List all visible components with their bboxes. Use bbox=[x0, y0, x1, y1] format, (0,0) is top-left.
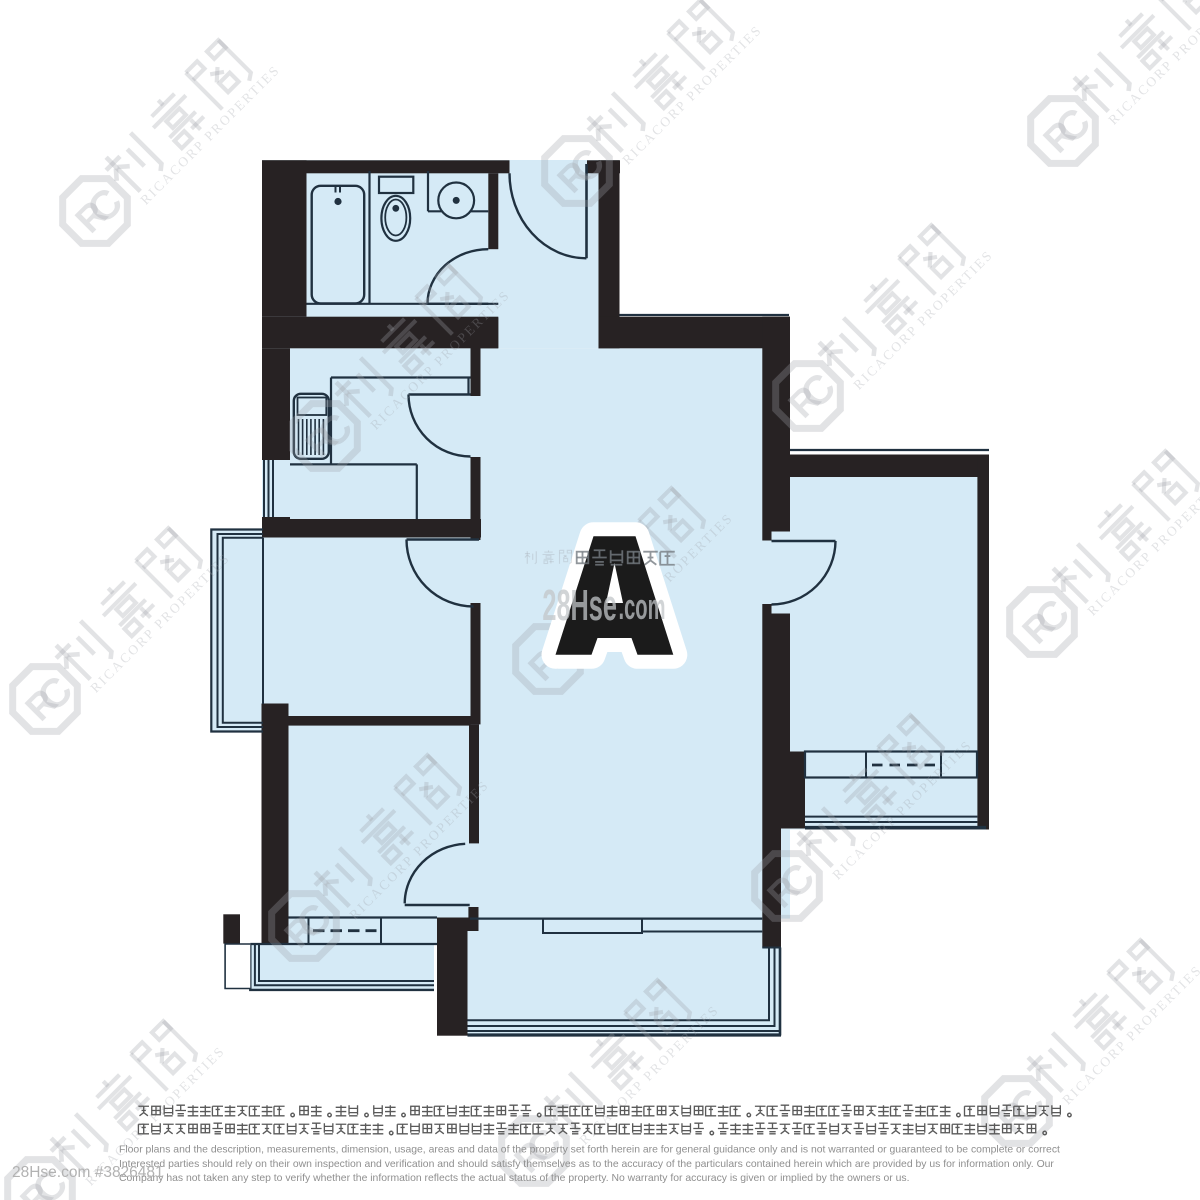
svg-text:28Hse.com #3826481: 28Hse.com #3826481 bbox=[12, 1164, 164, 1181]
svg-text:Floor plans and the descriptio: Floor plans and the description, measure… bbox=[119, 1145, 1060, 1156]
svg-text:Company has not taken any step: Company has not taken any step to verify… bbox=[119, 1173, 909, 1184]
svg-text:Interested parties should rely: Interested parties should rely on their … bbox=[119, 1159, 1054, 1170]
svg-text:28Hse: 28Hse bbox=[542, 581, 617, 630]
svg-text:.com: .com bbox=[619, 586, 666, 627]
